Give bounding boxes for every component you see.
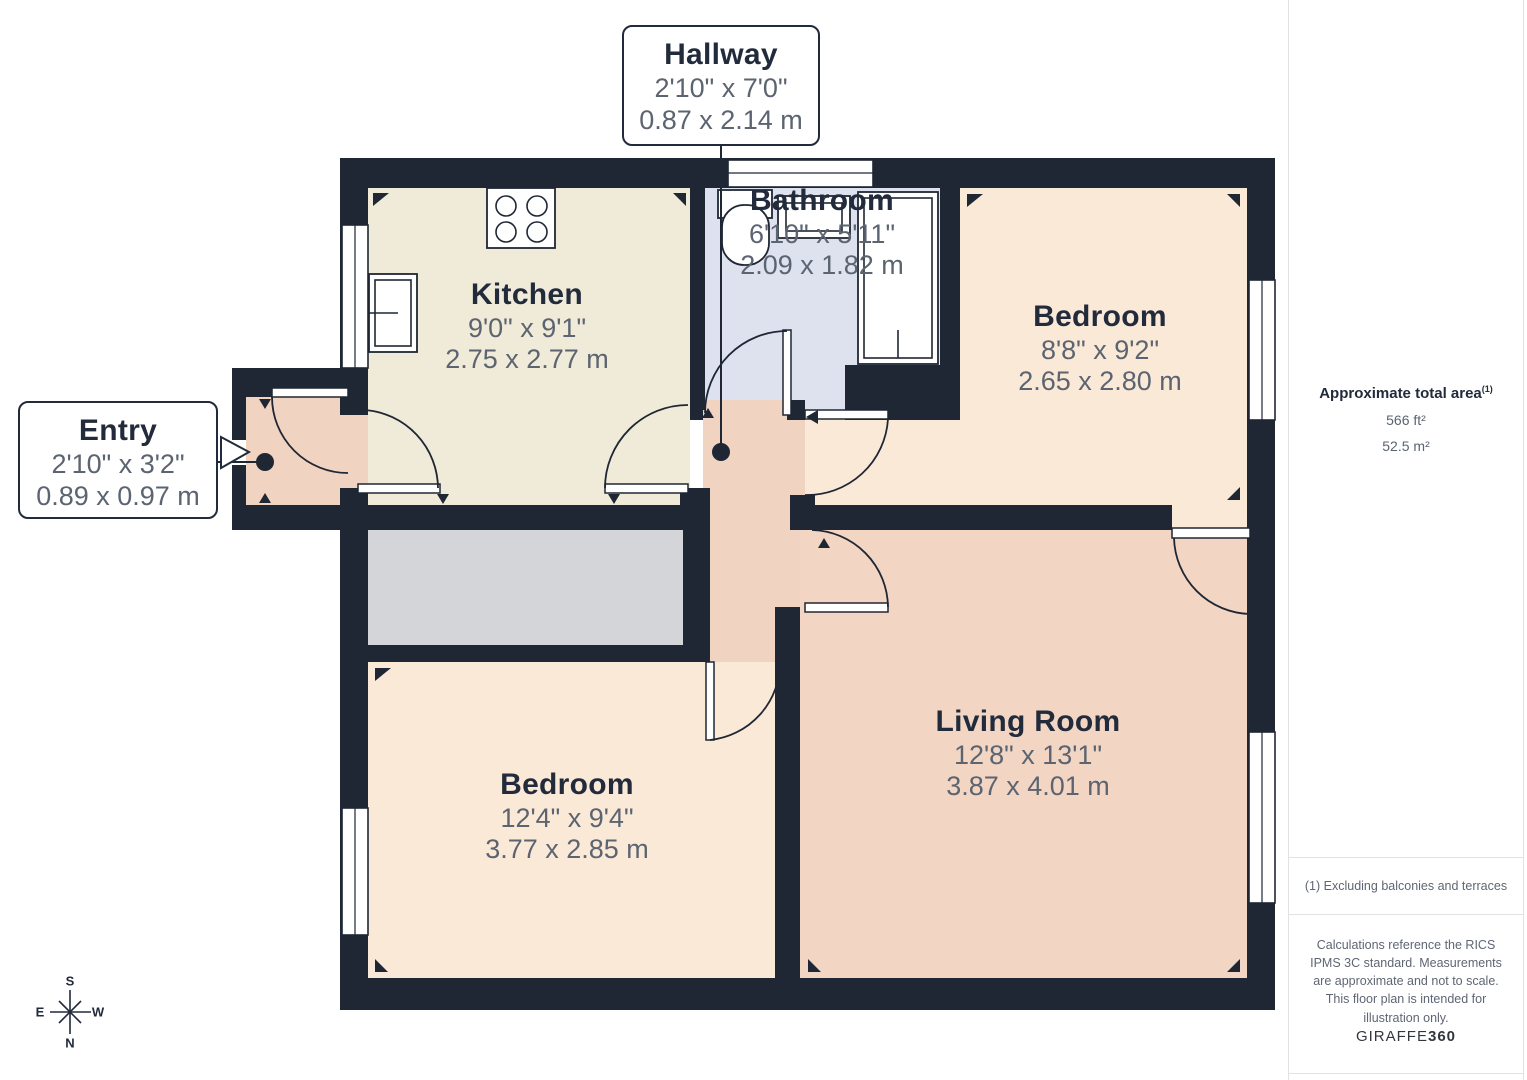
room-size-metric: 0.89 x 0.97 m xyxy=(20,481,216,513)
room-size-imperial: 12'8" x 13'1" xyxy=(936,740,1121,772)
room-name: Living Room xyxy=(936,705,1121,740)
brand-logo: GIRAFFE360 xyxy=(1289,1028,1523,1045)
disclaimer-text: Calculations reference the RICS IPMS 3C … xyxy=(1300,936,1512,1027)
callout-hallway: Hallway 2'10" x 7'0" 0.87 x 2.14 m xyxy=(622,25,820,146)
room-name: Entry xyxy=(20,413,216,449)
brand-name: GIRAFFE xyxy=(1356,1028,1428,1045)
brand-suffix: 360 xyxy=(1428,1028,1456,1045)
floor-plan-page: Kitchen 9'0" x 9'1" 2.75 x 2.77 m Bathro… xyxy=(0,0,1527,1080)
room-size-metric: 2.65 x 2.80 m xyxy=(1018,366,1182,398)
compass-west: W xyxy=(92,1005,104,1020)
room-label-bedroom-top: Bedroom 8'8" x 9'2" 2.65 x 2.80 m xyxy=(1018,300,1182,398)
kitchen-counter xyxy=(369,274,417,352)
room-name: Hallway xyxy=(624,37,818,73)
sidebar-bottom-rule xyxy=(1288,1073,1524,1074)
room-name: Bathroom xyxy=(740,184,904,219)
room-label-bathroom: Bathroom 6'10" x 5'11" 2.09 x 1.82 m xyxy=(740,184,904,282)
footnote-text: (1) Excluding balconies and terraces xyxy=(1305,879,1507,893)
compass-icon xyxy=(50,990,91,1034)
compass-south: S xyxy=(66,974,75,989)
room-size-metric: 3.77 x 2.85 m xyxy=(485,834,649,866)
total-area-title: Approximate total area(1) xyxy=(1289,384,1523,402)
room-label-living-room: Living Room 12'8" x 13'1" 3.87 x 4.01 m xyxy=(936,705,1121,803)
room-size-metric: 3.87 x 4.01 m xyxy=(936,771,1121,803)
total-area-footnote-ref: (1) xyxy=(1482,384,1493,394)
hallway-point xyxy=(712,443,730,461)
entry-direction-arrow xyxy=(221,437,249,468)
room-size-imperial: 6'10" x 5'11" xyxy=(740,219,904,251)
room-size-metric: 2.75 x 2.77 m xyxy=(445,344,609,376)
room-label-bedroom-bottom: Bedroom 12'4" x 9'4" 3.77 x 2.85 m xyxy=(485,768,649,866)
room-name: Kitchen xyxy=(445,278,609,313)
entry-point xyxy=(256,453,274,471)
room-size-imperial: 2'10" x 3'2" xyxy=(20,449,216,481)
info-sidebar: Approximate total area(1) 566 ft² 52.5 m… xyxy=(1288,0,1524,1080)
room-name: Bedroom xyxy=(485,768,649,803)
room-size-metric: 0.87 x 2.14 m xyxy=(624,105,818,137)
room-label-kitchen: Kitchen 9'0" x 9'1" 2.75 x 2.77 m xyxy=(445,278,609,376)
total-area-label: Approximate total area xyxy=(1319,385,1482,402)
total-area-m: 52.5 m² xyxy=(1289,438,1523,454)
room-size-imperial: 8'8" x 9'2" xyxy=(1018,335,1182,367)
total-area-ft: 566 ft² xyxy=(1289,412,1523,428)
compass-east: E xyxy=(36,1005,45,1020)
room-size-imperial: 12'4" x 9'4" xyxy=(485,803,649,835)
callout-entry: Entry 2'10" x 3'2" 0.89 x 0.97 m xyxy=(18,401,218,519)
room-size-imperial: 9'0" x 9'1" xyxy=(445,313,609,345)
room-name: Bedroom xyxy=(1018,300,1182,335)
stove xyxy=(487,188,555,248)
room-size-metric: 2.09 x 1.82 m xyxy=(740,250,904,282)
footnote-section: (1) Excluding balconies and terraces xyxy=(1289,857,1523,915)
total-area-block: Approximate total area(1) 566 ft² 52.5 m… xyxy=(1289,384,1523,454)
compass-north: N xyxy=(65,1036,74,1051)
room-size-imperial: 2'10" x 7'0" xyxy=(624,73,818,105)
